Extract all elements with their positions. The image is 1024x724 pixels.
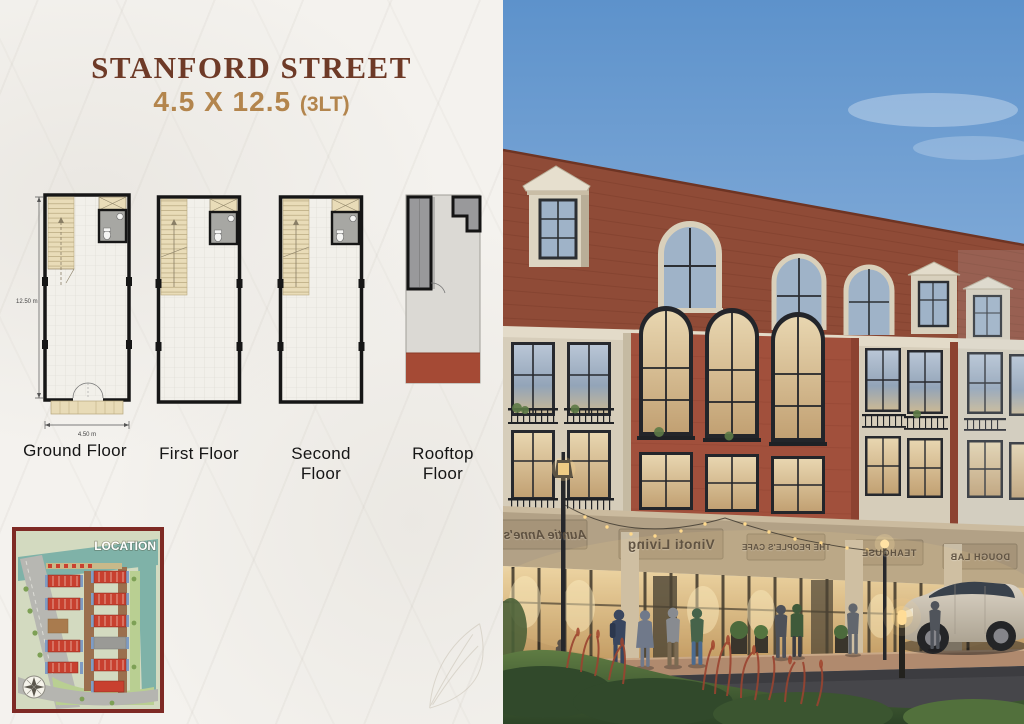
floor-plan-rooftop-drawing	[398, 187, 488, 417]
floor-plan-caption: First Floor	[154, 444, 244, 464]
floor-plan-second: Second Floor	[276, 187, 366, 484]
page-title: STANFORD STREET	[0, 50, 503, 86]
page-subtitle-suffix: (3LT)	[300, 93, 350, 116]
floor-plan-caption: Rooftop Floor	[398, 444, 488, 484]
street-render-scene	[503, 0, 1024, 724]
dormer-window	[908, 262, 960, 334]
dormer-window	[523, 166, 590, 267]
floor-plan-second-drawing	[276, 187, 366, 417]
floor-plan-first-drawing	[154, 187, 244, 417]
floor-plan-first: First Floor	[154, 187, 244, 464]
floor-plan-ground-drawing: 12.50 m 4.50 m	[15, 185, 135, 440]
street-render: Auntie Anne's Vinoti Living THE PEOPLE'S…	[503, 0, 1024, 724]
page-subtitle: 4.5 X 12.5 (3LT)	[0, 86, 503, 118]
storefront-sign-auntie-annes: Auntie Anne's	[503, 524, 587, 546]
floor-plan-caption: Second Floor	[276, 444, 366, 484]
dormer-window	[657, 224, 723, 313]
location-map-drawing: LOCATION	[12, 527, 164, 713]
brochure-page: STANFORD STREET 4.5 X 12.5 (3LT)	[0, 0, 1024, 724]
floor-plan-rooftop: Rooftop Floor	[398, 187, 488, 484]
height-dimension-label: 12.50 m	[16, 299, 38, 305]
floor-plan-ground: 12.50 m 4.50 m Ground Floor	[15, 185, 135, 461]
leaf-watermark-icon	[428, 618, 506, 722]
floor-plan-caption: Ground Floor	[15, 441, 135, 461]
storefront-sign-dough-lab: DOUGH LAB	[945, 547, 1015, 567]
storefront-sign-teahouse: TEAHOUSE	[857, 543, 921, 563]
page-subtitle-size: 4.5 X 12.5	[153, 86, 291, 117]
storefront-sign-peoples-cafe: THE PEOPLE'S CAFE	[749, 537, 823, 557]
dormer-window	[846, 267, 892, 335]
brochure-panel: STANFORD STREET 4.5 X 12.5 (3LT)	[0, 0, 503, 724]
compass-icon	[23, 676, 45, 698]
location-map: LOCATION	[12, 527, 164, 713]
location-map-title: LOCATION	[94, 539, 156, 553]
storefront-sign-vinoti-living: Vinoti Living	[621, 532, 721, 556]
width-dimension-label: 4.50 m	[78, 432, 96, 438]
